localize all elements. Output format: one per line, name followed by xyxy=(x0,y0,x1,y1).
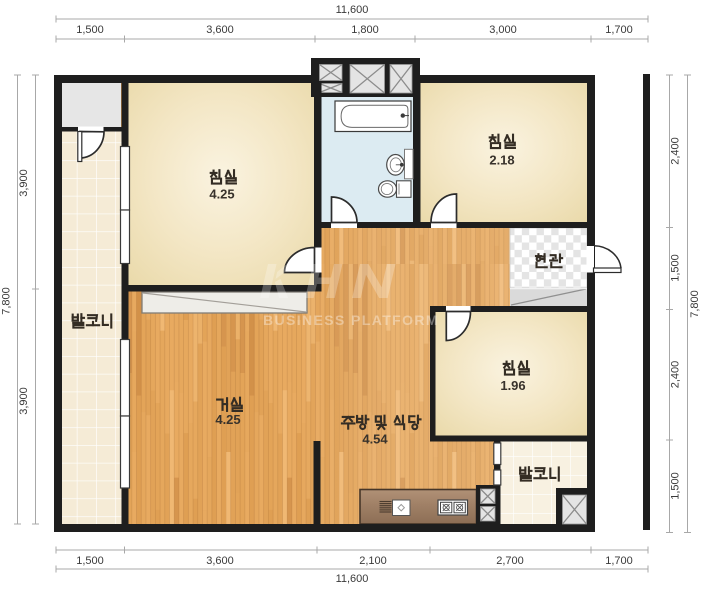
svg-text:2,400: 2,400 xyxy=(670,361,682,389)
svg-text:2,700: 2,700 xyxy=(496,555,524,567)
svg-text:4.54: 4.54 xyxy=(362,432,388,447)
svg-text:3,900: 3,900 xyxy=(18,169,30,197)
svg-text:1,500: 1,500 xyxy=(76,24,104,36)
svg-text:1,700: 1,700 xyxy=(605,555,633,567)
svg-text:3,600: 3,600 xyxy=(206,24,234,36)
svg-text:11,600: 11,600 xyxy=(336,4,369,16)
svg-text:1,500: 1,500 xyxy=(670,254,682,282)
svg-text:1,700: 1,700 xyxy=(605,24,633,36)
svg-text:3,900: 3,900 xyxy=(18,387,30,415)
svg-text:BUSINESS PLATFORM: BUSINESS PLATFORM xyxy=(263,312,439,328)
svg-text:1,500: 1,500 xyxy=(76,555,104,567)
svg-text:11,600: 11,600 xyxy=(336,573,369,585)
svg-text:4.25: 4.25 xyxy=(209,187,234,202)
svg-text:3,600: 3,600 xyxy=(206,555,234,567)
svg-text:7,800: 7,800 xyxy=(1,287,13,315)
svg-text:1,800: 1,800 xyxy=(351,24,379,36)
svg-text:1,500: 1,500 xyxy=(670,472,682,500)
svg-text:2.18: 2.18 xyxy=(489,153,514,168)
svg-text:4.25: 4.25 xyxy=(215,412,240,427)
svg-text:3,000: 3,000 xyxy=(489,24,517,36)
svg-text:2,100: 2,100 xyxy=(359,555,387,567)
svg-text:2,400: 2,400 xyxy=(670,137,682,165)
svg-text:1.96: 1.96 xyxy=(500,378,525,393)
svg-text:7,800: 7,800 xyxy=(689,290,701,318)
